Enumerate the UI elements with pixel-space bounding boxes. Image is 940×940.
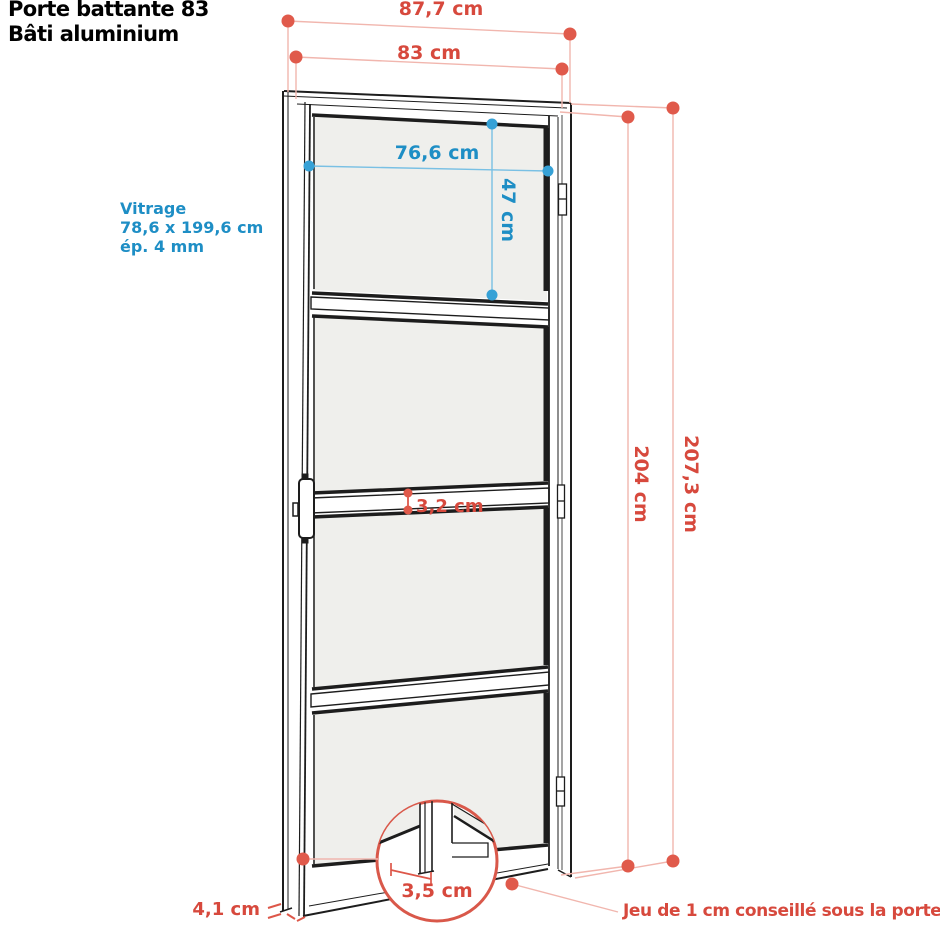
page-title: Porte battante 83 Bâti aluminium [8,0,209,47]
glass-panel-2 [313,314,547,494]
dim-frame-depth-label: 4,1 cm [160,899,260,920]
title-line1: Porte battante 83 [8,0,209,22]
glazing-label-line1: Vitrage [120,199,263,218]
dim-outer-height-label: 207,3 cm [680,435,702,533]
glazing-label-line3: ép. 4 mm [120,237,263,256]
title-line2: Bâti aluminium [8,22,209,47]
dim-inner-width-label: 83 cm [329,42,529,64]
glass-panel-3 [313,506,547,690]
diagram-svg [0,0,940,940]
dim-top-panel-height-label: 47 cm [497,178,519,242]
glazing-label: Vitrage 78,6 x 199,6 cm ép. 4 mm [120,199,263,256]
glazing-label-line2: 78,6 x 199,6 cm [120,218,263,237]
door-dimension-diagram: Porte battante 83 Bâti aluminium 87,7 cm… [0,0,940,940]
dim-bottom-rail-depth-label: 3,5 cm [362,880,512,902]
dim-inner-height-label: 204 cm [630,445,652,522]
dim-crossbar-thickness-label: 3,2 cm [416,496,484,517]
dim-glass-width-label: 76,6 cm [337,142,537,164]
dim-outer-width-label: 87,7 cm [341,0,541,20]
door-handle [293,474,314,544]
clearance-note: Jeu de 1 cm conseillé sous la porte [623,901,940,921]
